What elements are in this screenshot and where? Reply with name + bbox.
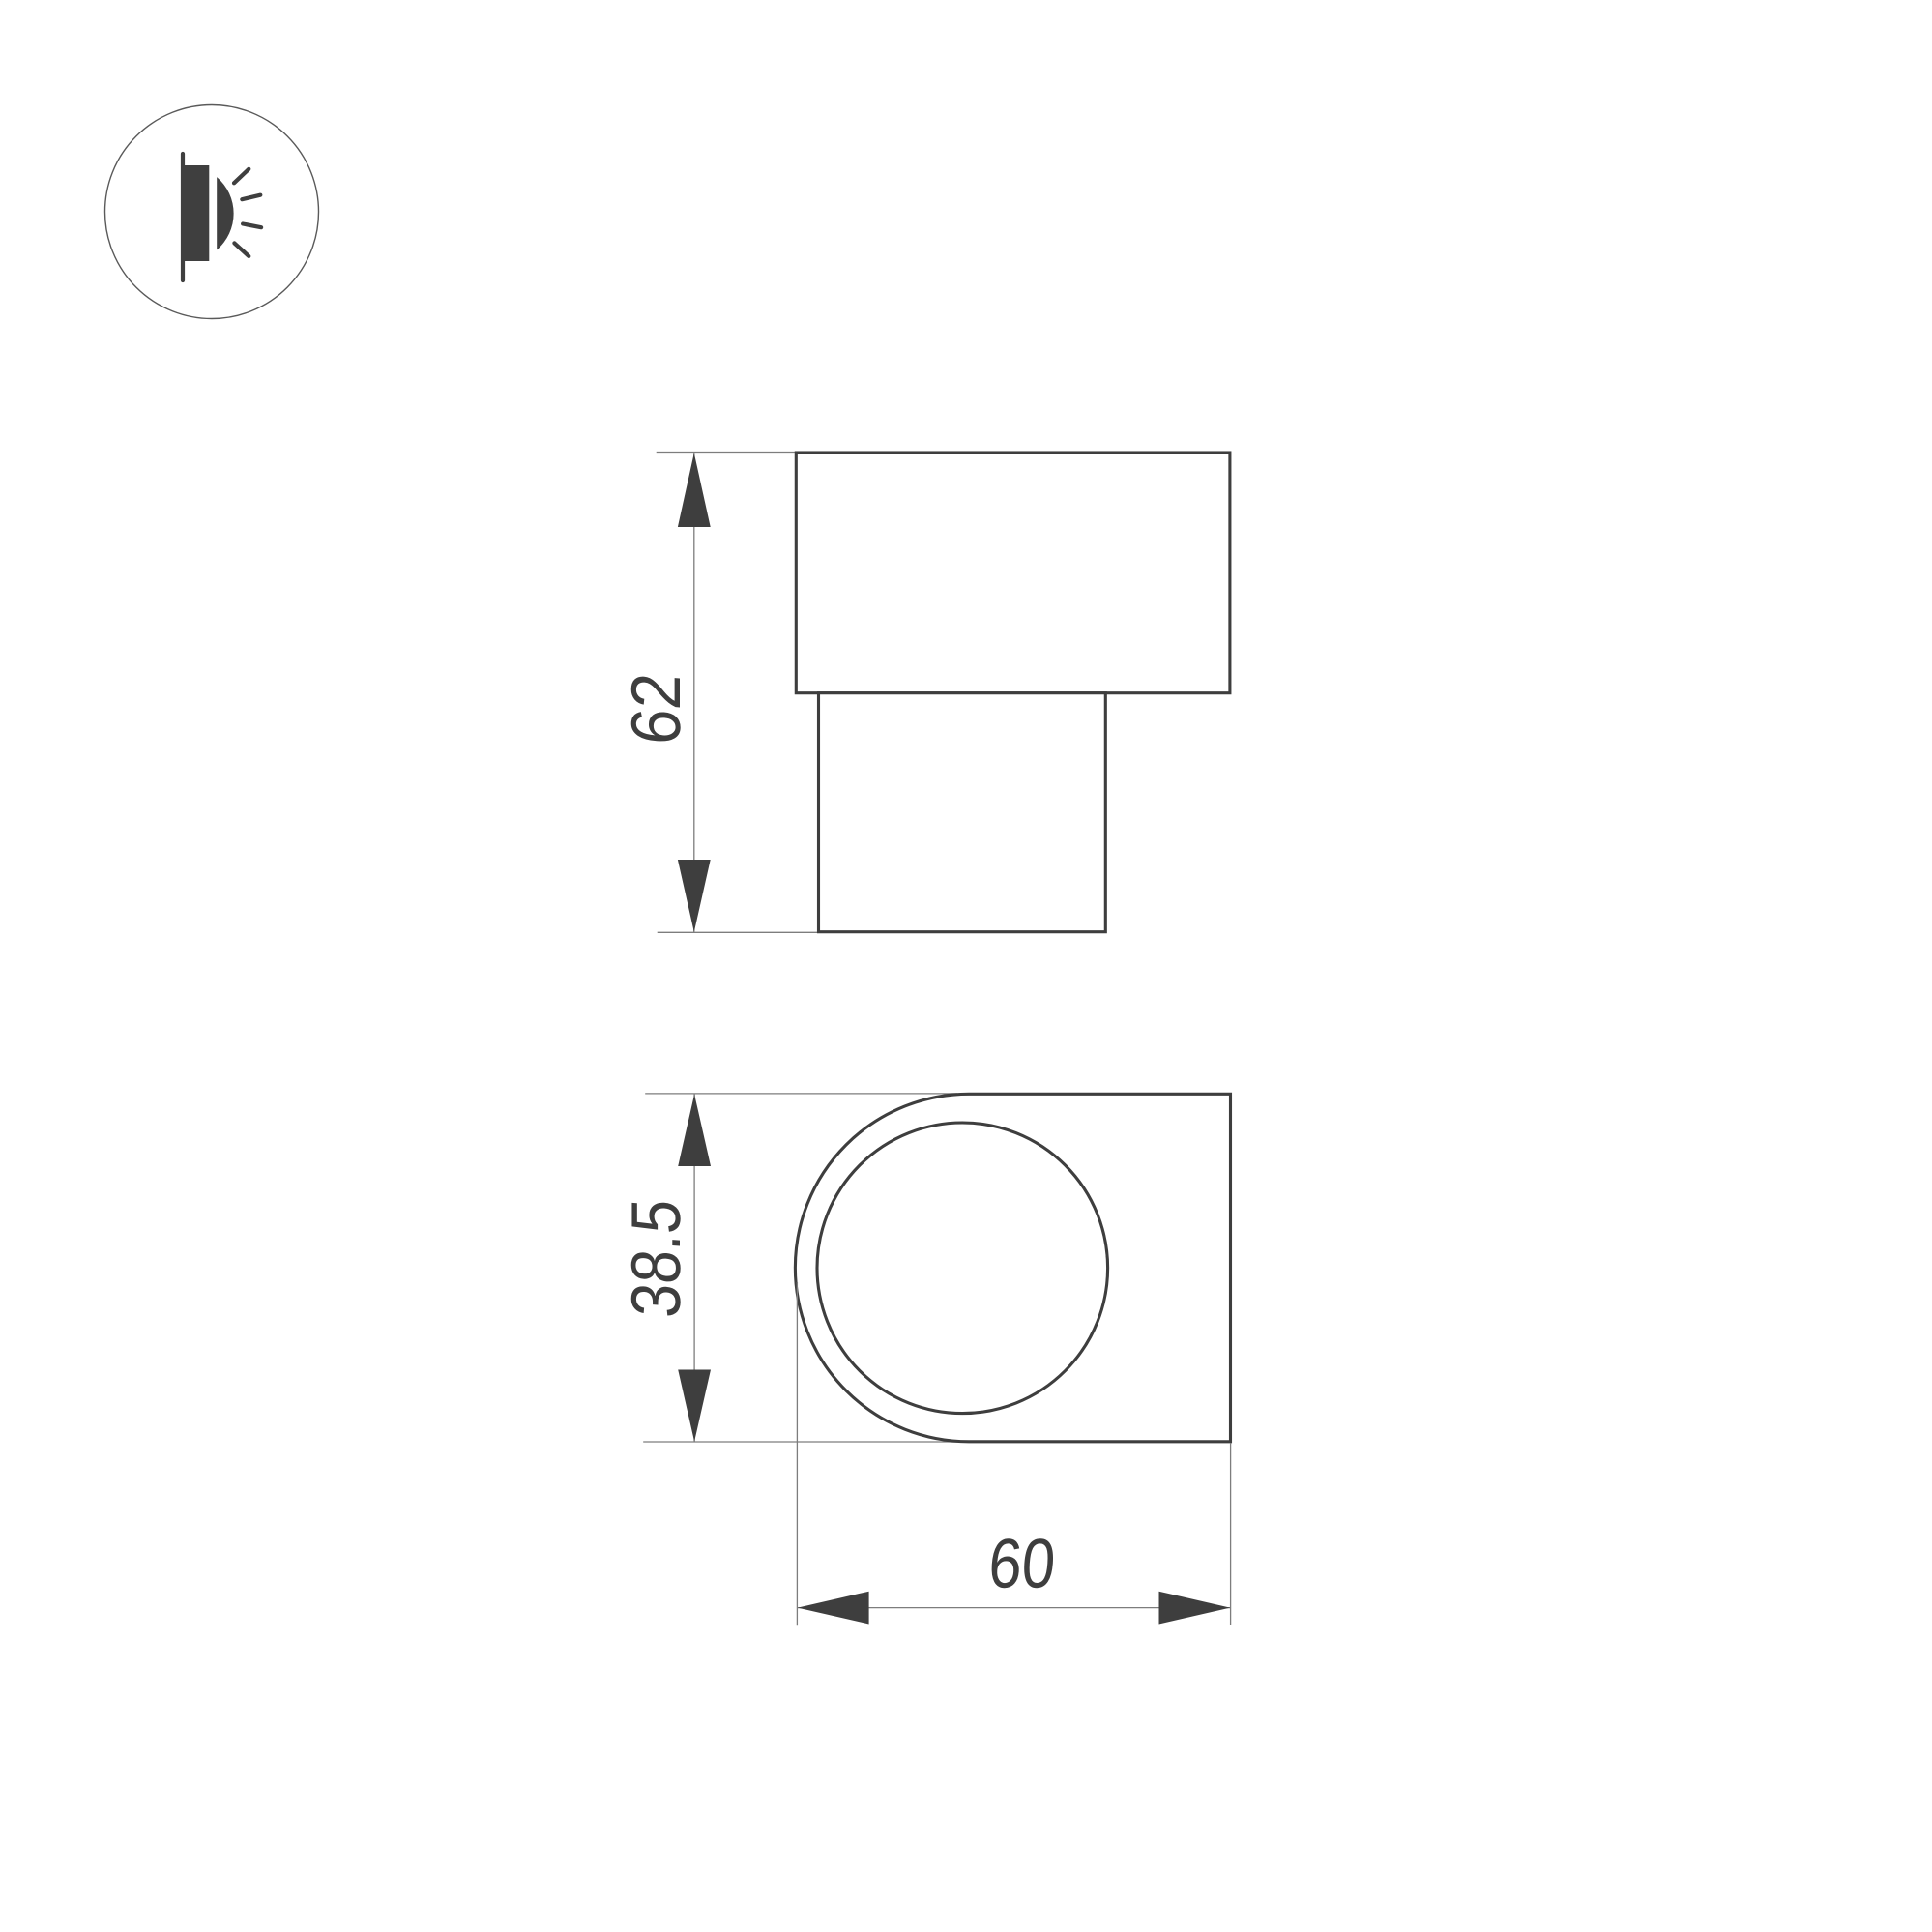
- svg-text:62: 62: [618, 671, 695, 747]
- svg-text:38.5: 38.5: [618, 1197, 695, 1320]
- svg-text:60: 60: [986, 1526, 1058, 1603]
